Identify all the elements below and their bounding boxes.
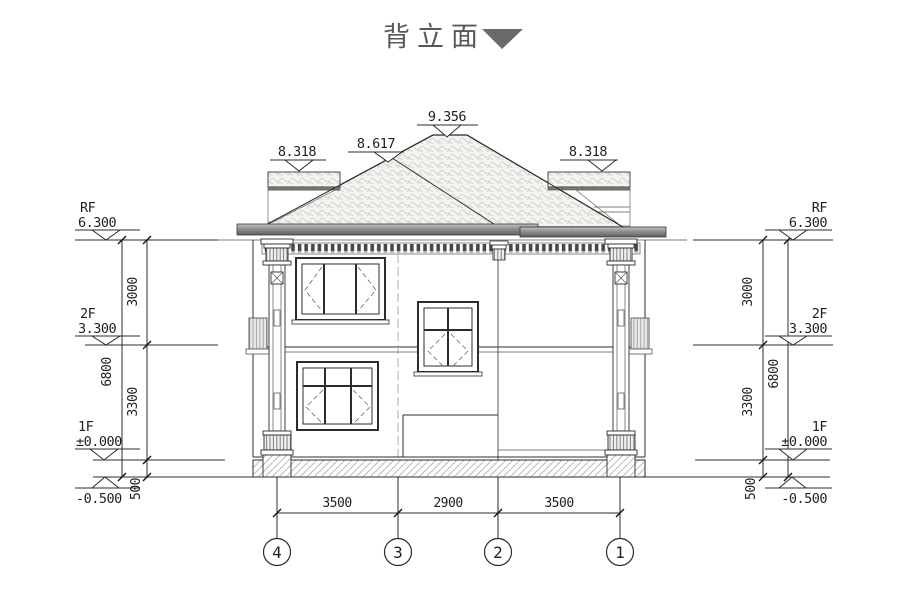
axis-label-4: 4 [272, 543, 282, 562]
axis-bubbles: 4 3 2 1 [264, 539, 634, 566]
dim-3000-left: 3000 [126, 277, 141, 306]
rf-value-right: 6.300 [789, 215, 828, 231]
f2-value-left: 3.300 [78, 321, 117, 337]
title-down-triangle-icon [482, 29, 523, 49]
dentils [263, 244, 639, 253]
plinth-hatched [253, 460, 645, 477]
elevation-markers-left: RF 6.300 2F 3.300 1F ±0.000 -0.500 [75, 200, 140, 507]
dim-500-right: 500 [744, 478, 759, 500]
dim-6800-right: 6800 [767, 359, 782, 388]
mid-left-elevation: 8.617 [357, 136, 396, 152]
axis-label-1: 1 [615, 543, 625, 562]
peak-elevation: 9.356 [428, 109, 467, 125]
f2-label-left: 2F [80, 306, 96, 322]
rear-elevation-drawing: 背立面 [0, 0, 910, 616]
dim-3000-right: 3000 [741, 277, 756, 306]
column-right [605, 239, 637, 477]
dim-3300-right: 3300 [741, 387, 756, 416]
window-1f-left [297, 362, 378, 430]
drawing-title-block: 背立面 [383, 22, 523, 53]
dim-middle-bay: 2900 [433, 496, 462, 511]
dim-3300-left: 3300 [126, 387, 141, 416]
window-stair-middle [414, 302, 482, 376]
page-title: 背立面 [383, 22, 485, 53]
parapet-left-elevation: 8.318 [278, 144, 317, 160]
f1-value-right: ±0.000 [781, 434, 827, 450]
f2-value-right: 3.300 [789, 321, 828, 337]
axis-label-3: 3 [393, 543, 403, 562]
elevation-drawing-canvas: 背立面 [0, 0, 910, 616]
rf-label-left: RF [80, 200, 96, 216]
eave-band-left [237, 224, 538, 235]
f2-label-right: 2F [812, 306, 828, 322]
dim-500-left: 500 [129, 478, 144, 500]
f1-label-right: 1F [812, 419, 828, 435]
louver-left [246, 318, 270, 354]
f1-value-left: ±0.000 [76, 434, 122, 450]
bottom-dimensions: 3500 2900 3500 [273, 477, 624, 538]
f1-label-left: 1F [78, 419, 94, 435]
louver-right [628, 318, 652, 354]
dim-left-bay: 3500 [322, 496, 351, 511]
grade-value-right: -0.500 [781, 491, 827, 507]
rf-value-left: 6.300 [78, 215, 117, 231]
grade-value-left: -0.500 [76, 491, 122, 507]
axis-label-2: 2 [493, 543, 503, 562]
elevation-markers-right: RF 6.300 2F 3.300 1F ±0.000 -0.500 [765, 200, 832, 507]
window-2f-left [292, 258, 389, 324]
pilaster-capital-axis2 [490, 241, 508, 260]
dim-right-bay: 3500 [544, 496, 573, 511]
column-left [261, 239, 293, 477]
eave-band-right [520, 227, 666, 237]
rf-label-right: RF [812, 200, 828, 216]
parapet-right-elevation: 8.318 [569, 144, 608, 160]
dim-6800-left: 6800 [100, 357, 115, 386]
